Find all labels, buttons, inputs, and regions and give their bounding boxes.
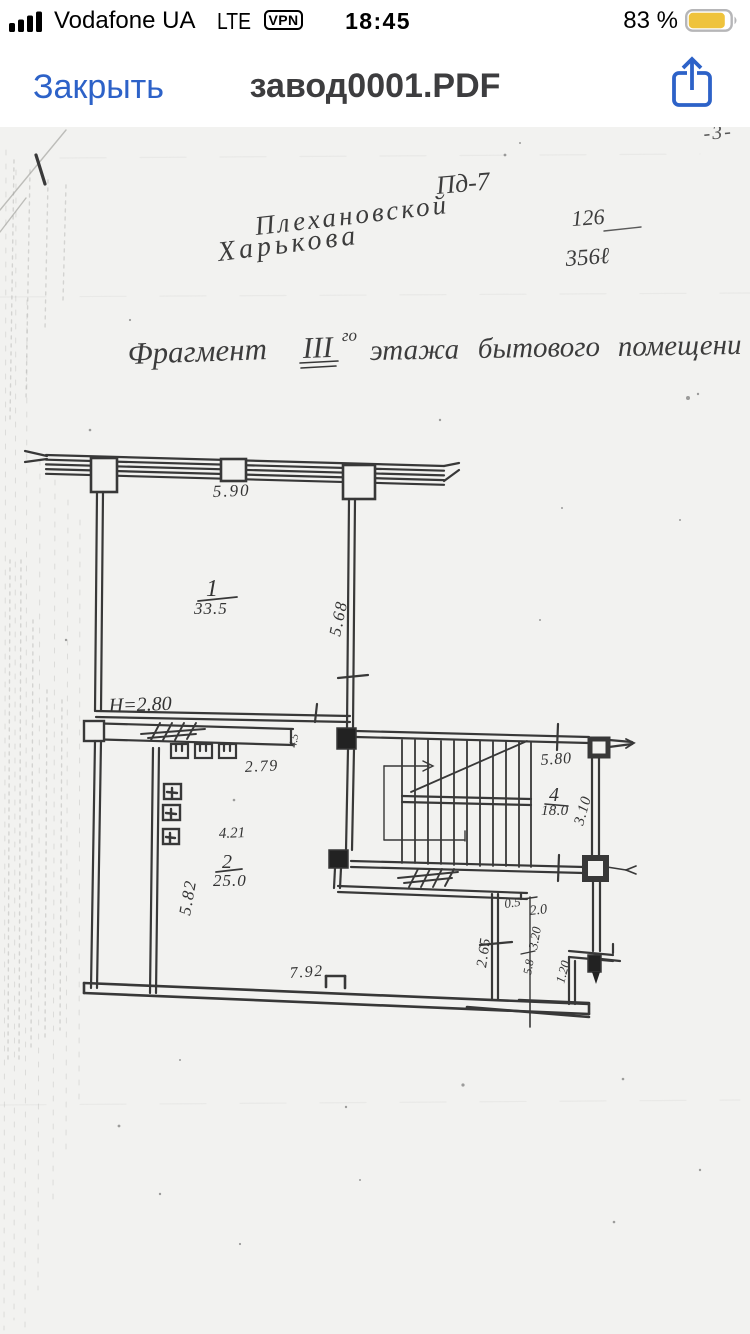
- svg-text:III: III: [301, 331, 335, 365]
- svg-text:356ℓ: 356ℓ: [564, 243, 611, 271]
- svg-text:7.92: 7.92: [289, 963, 324, 982]
- svg-text:-3-: -3-: [703, 127, 734, 145]
- svg-text:126: 126: [571, 204, 606, 231]
- svg-text:0.5: 0.5: [503, 894, 522, 911]
- svg-text:4.5: 4.5: [287, 732, 301, 748]
- svg-text:5.8: 5.8: [520, 958, 536, 975]
- svg-text:5.80: 5.80: [540, 750, 572, 769]
- svg-text:5.90: 5.90: [212, 481, 250, 501]
- svg-text:25.0: 25.0: [213, 871, 247, 890]
- svg-text:го: го: [341, 325, 357, 345]
- svg-text:2.0: 2.0: [529, 902, 548, 919]
- svg-text:помещени: помещени: [618, 329, 742, 363]
- svg-text:2.79: 2.79: [244, 757, 279, 776]
- svg-text:4.21: 4.21: [219, 825, 246, 842]
- svg-text:этажа: этажа: [370, 333, 460, 367]
- svg-text:Фрагмент: Фрагмент: [127, 331, 267, 371]
- svg-text:бытового: бытового: [478, 331, 601, 365]
